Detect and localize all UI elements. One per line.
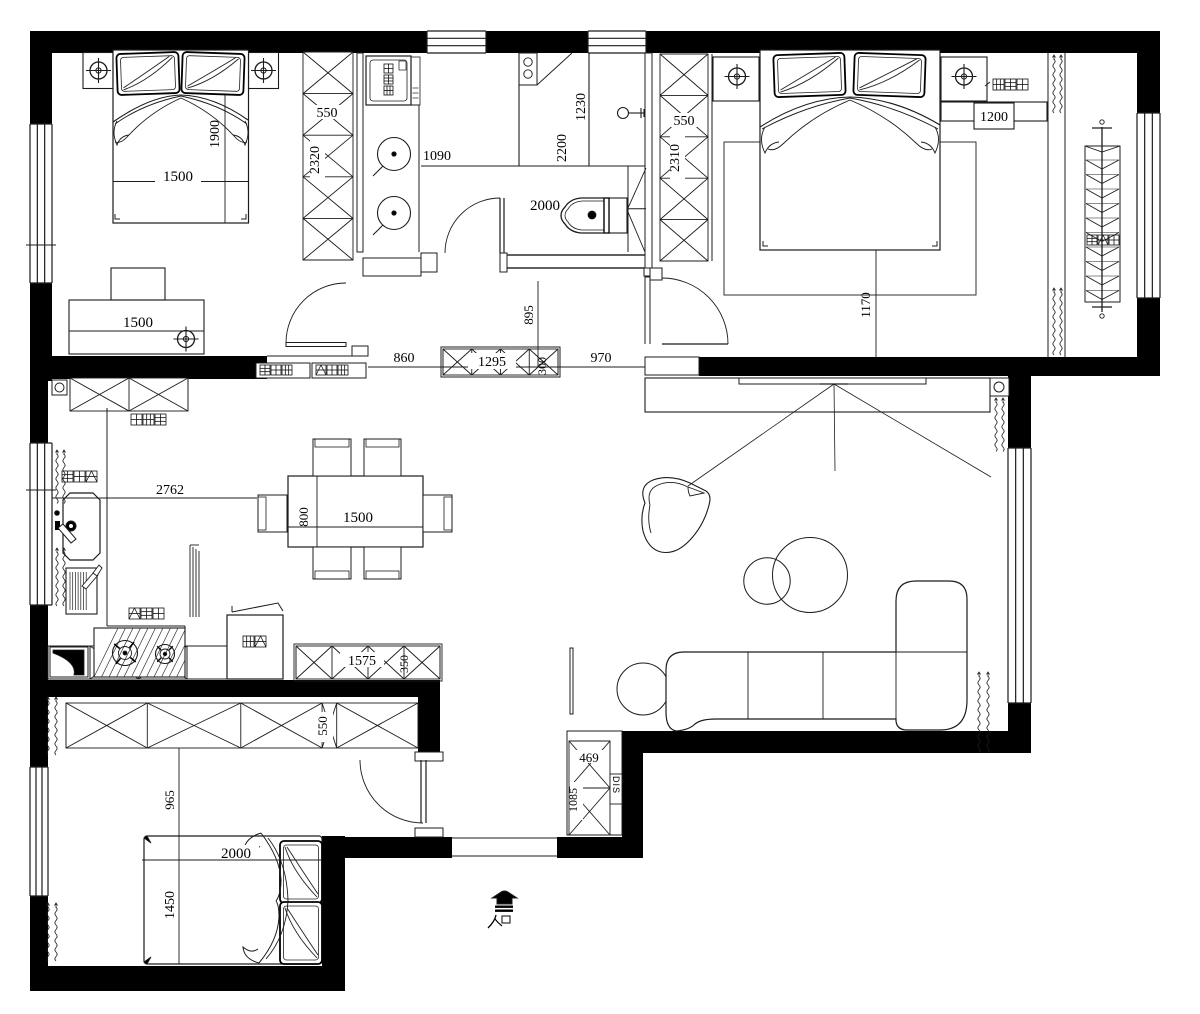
svg-text:350: 350 <box>397 655 411 673</box>
svg-text:970: 970 <box>591 351 612 366</box>
svg-text:2320: 2320 <box>308 146 323 174</box>
svg-text:895: 895 <box>521 305 536 325</box>
svg-text:1295: 1295 <box>478 355 506 370</box>
svg-text:2200: 2200 <box>555 134 570 162</box>
svg-text:1500: 1500 <box>123 315 153 331</box>
svg-text:550: 550 <box>315 716 330 736</box>
svg-text:1900: 1900 <box>208 120 223 148</box>
svg-text:2762: 2762 <box>156 483 184 498</box>
svg-text:300: 300 <box>535 357 549 375</box>
svg-text:1500: 1500 <box>163 169 193 185</box>
svg-text:800: 800 <box>296 507 311 527</box>
svg-text:1450: 1450 <box>163 891 178 919</box>
svg-text:2000: 2000 <box>221 846 251 862</box>
svg-text:1170: 1170 <box>858 292 873 318</box>
svg-text:469: 469 <box>579 750 599 765</box>
svg-text:1200: 1200 <box>980 110 1008 125</box>
svg-text:1085: 1085 <box>566 788 580 812</box>
svg-text:DIS: DIS <box>611 776 621 794</box>
svg-text:1230: 1230 <box>574 93 589 121</box>
svg-text:550: 550 <box>317 106 338 121</box>
svg-text:550: 550 <box>674 114 695 129</box>
svg-text:2310: 2310 <box>668 144 683 172</box>
svg-text:1575: 1575 <box>348 654 376 669</box>
svg-text:860: 860 <box>394 351 415 366</box>
svg-text:1090: 1090 <box>423 149 451 164</box>
svg-text:1500: 1500 <box>343 510 373 526</box>
svg-text:965: 965 <box>162 790 177 810</box>
svg-text:2000: 2000 <box>530 198 560 214</box>
